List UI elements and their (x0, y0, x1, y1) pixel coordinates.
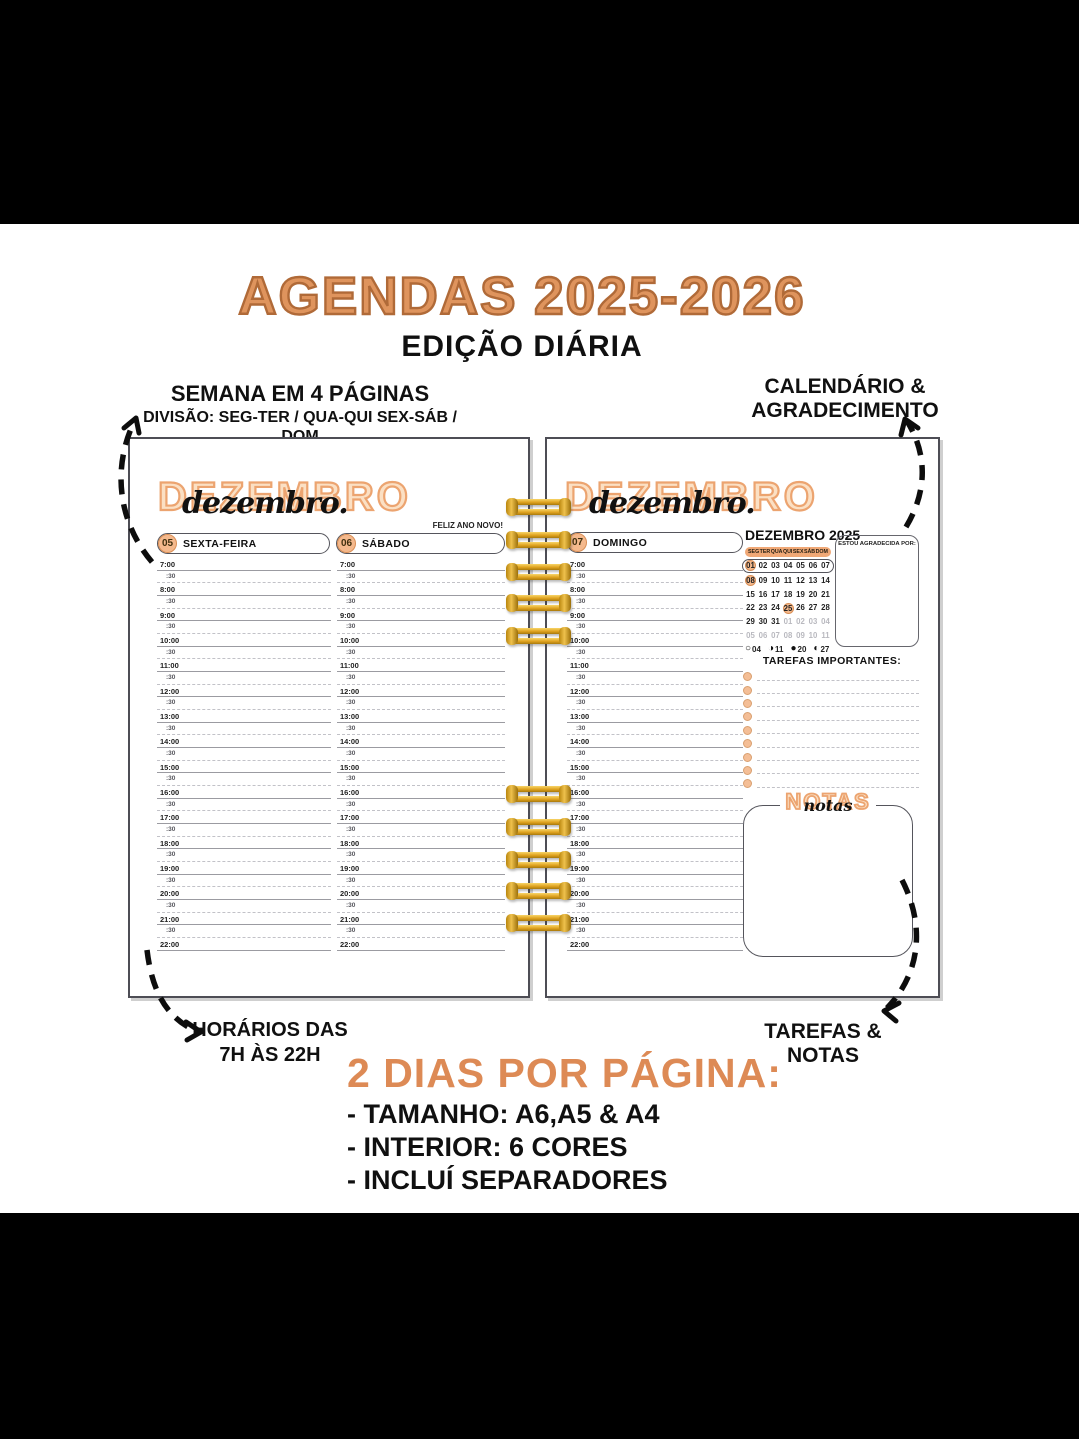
half-hour-label: :30 (576, 699, 585, 706)
planner-right-page: DEZEMBRO dezembro. 07 DOMINGO 7:00:308:0… (545, 437, 940, 998)
half-slot-row: :30 (337, 672, 505, 685)
spiral-ring (507, 915, 570, 931)
half-hour-label: :30 (576, 598, 585, 605)
calendar-day: 01 (783, 616, 794, 628)
time-slot-row: 16:00 (157, 786, 331, 799)
half-hour-label: :30 (346, 699, 355, 706)
time-label: 14:00 (340, 737, 359, 746)
half-slot-row: :30 (157, 849, 331, 862)
half-slot-row: :30 (157, 596, 331, 609)
schedule-grid-friday: 7:00:308:00:309:00:3010:00:3011:00:3012:… (157, 558, 331, 951)
time-slot-row: 16:00 (337, 786, 505, 799)
moon-phase: ○04 (745, 644, 761, 654)
half-hour-label: :30 (576, 851, 585, 858)
notes-header: NOTAS notas (743, 789, 913, 815)
time-label: 8:00 (160, 585, 175, 594)
calendar-day: 07 (770, 630, 781, 642)
half-hour-label: :30 (166, 775, 175, 782)
time-label: 22:00 (340, 940, 359, 949)
half-hour-label: :30 (346, 623, 355, 630)
spiral-cap (506, 563, 518, 581)
calendar-day: 15 (745, 589, 756, 601)
time-label: 12:00 (570, 687, 589, 696)
calendar-day: 27 (808, 602, 819, 614)
time-label: 21:00 (340, 915, 359, 924)
calendar-day: 07 (820, 560, 831, 572)
time-label: 15:00 (340, 763, 359, 772)
spiral-cap (506, 882, 518, 900)
time-slot-row: 9:00 (157, 609, 331, 622)
time-label: 11:00 (570, 661, 589, 670)
time-slot-row: 17:00 (567, 811, 743, 824)
day-name-label: SEXTA-FEIRA (183, 538, 257, 550)
calendar-day: 02 (758, 560, 769, 572)
calendar-week-row: 01020304050607 (742, 559, 834, 573)
month-header: DEZEMBRO dezembro. (565, 475, 818, 520)
time-label: 15:00 (570, 763, 589, 772)
day-header-sunday: 07 DOMINGO (567, 532, 743, 553)
mini-calendar: DEZEMBRO 2025 SEGTERQUAQUISEXSÁBDOM 0102… (745, 527, 831, 654)
half-slot-row: :30 (157, 875, 331, 888)
time-slot-row: 7:00 (157, 558, 331, 571)
time-label: 19:00 (570, 864, 589, 873)
time-label: 13:00 (160, 712, 179, 721)
calendar-day: 01 (745, 560, 756, 571)
annotation-hours-line2: 7H ÀS 22H (190, 1043, 350, 1068)
spiral-cap (506, 851, 518, 869)
page-title: AGENDAS 2025-2026 (0, 266, 1044, 327)
half-slot-row: :30 (337, 773, 505, 786)
time-label: 8:00 (340, 585, 355, 594)
mini-calendar-weekday-row: SEGTERQUAQUISEXSÁBDOM (745, 547, 831, 557)
half-slot-row: :30 (567, 672, 743, 685)
holiday-note: FELIZ ANO NOVO! (345, 521, 503, 530)
time-label: 21:00 (160, 915, 179, 924)
time-label: 9:00 (570, 611, 585, 620)
time-slot-row: 13:00 (567, 710, 743, 723)
half-slot-row: :30 (337, 875, 505, 888)
half-hour-label: :30 (346, 826, 355, 833)
spiral-cap (506, 914, 518, 932)
spiral-cap (559, 498, 571, 516)
time-label: 17:00 (340, 813, 359, 822)
annotation-week-pages-line1: SEMANA EM 4 PÁGINAS (130, 381, 470, 406)
day-number-badge: 06 (337, 534, 356, 553)
gratitude-label: ESTOU AGRADECIDA POR: (836, 541, 918, 547)
half-slot-row: :30 (337, 799, 505, 812)
time-label: 18:00 (340, 839, 359, 848)
calendar-day: 19 (795, 589, 806, 601)
task-row (743, 683, 919, 696)
spiral-cap (506, 531, 518, 549)
calendar-day: 30 (758, 616, 769, 628)
task-line (757, 692, 919, 694)
time-label: 10:00 (340, 636, 359, 645)
half-slot-row: :30 (157, 748, 331, 761)
spiral-ring (507, 628, 570, 644)
half-hour-label: :30 (166, 674, 175, 681)
time-label: 7:00 (570, 560, 585, 569)
features-list: - TAMANHO: A6,A5 & A4 - INTERIOR: 6 CORE… (347, 1098, 668, 1197)
time-slot-row: 18:00 (157, 837, 331, 850)
time-label: 12:00 (340, 687, 359, 696)
time-slot-row: 7:00 (337, 558, 505, 571)
calendar-day: 12 (795, 575, 806, 587)
half-slot-row: :30 (157, 824, 331, 837)
time-slot-row: 8:00 (337, 583, 505, 596)
half-hour-label: :30 (346, 877, 355, 884)
time-slot-row: 19:00 (157, 862, 331, 875)
half-slot-row: :30 (567, 697, 743, 710)
time-slot-row: 13:00 (337, 710, 505, 723)
notes-header-wrap: NOTAS notas (780, 789, 875, 815)
annotation-calendar-gratitude: CALENDÁRIO & AGRADECIMENTO (745, 375, 945, 423)
half-slot-row: :30 (157, 621, 331, 634)
time-label: 22:00 (160, 940, 179, 949)
task-bullet-icon (743, 712, 752, 721)
calendar-day: 17 (770, 589, 781, 601)
time-label: 19:00 (160, 864, 179, 873)
time-label: 21:00 (570, 915, 589, 924)
half-hour-label: :30 (166, 699, 175, 706)
half-slot-row: :30 (567, 647, 743, 660)
calendar-week-row: 05060708091011 (745, 630, 831, 642)
calendar-weekday: TER (760, 549, 771, 555)
time-slot-row: 10:00 (337, 634, 505, 647)
time-slot-row: 15:00 (567, 761, 743, 774)
task-bullet-icon (743, 753, 752, 762)
half-hour-label: :30 (576, 649, 585, 656)
moon-phase-day: 11 (775, 645, 783, 654)
half-hour-label: :30 (166, 649, 175, 656)
spiral-cap (559, 818, 571, 836)
spiral-cap (559, 785, 571, 803)
time-label: 20:00 (340, 889, 359, 898)
time-label: 19:00 (340, 864, 359, 873)
time-label: 14:00 (570, 737, 589, 746)
spiral-ring (507, 883, 570, 899)
time-slot-row: 9:00 (567, 609, 743, 622)
half-hour-label: :30 (576, 750, 585, 757)
spiral-cap (506, 594, 518, 612)
day-name-label: DOMINGO (593, 537, 647, 549)
time-slot-row: 21:00 (337, 913, 505, 926)
annotation-calendar-line2: AGRADECIMENTO (745, 399, 945, 423)
time-slot-row: 21:00 (567, 913, 743, 926)
day-header-friday: 05 SEXTA-FEIRA (157, 533, 330, 554)
task-line (757, 786, 919, 788)
time-slot-row: 22:00 (567, 938, 743, 951)
time-label: 11:00 (340, 661, 359, 670)
time-slot-row: 19:00 (567, 862, 743, 875)
time-label: 17:00 (570, 813, 589, 822)
spiral-ring (507, 595, 570, 611)
moon-phase: ●20 (790, 644, 806, 654)
gratitude-box: ESTOU AGRADECIDA POR: (835, 535, 919, 647)
half-slot-row: :30 (157, 672, 331, 685)
calendar-day: 25 (783, 603, 794, 614)
half-hour-label: :30 (346, 573, 355, 580)
calendar-day: 28 (820, 602, 831, 614)
calendar-weekday: QUI (783, 549, 792, 555)
half-slot-row: :30 (567, 571, 743, 584)
half-hour-label: :30 (346, 902, 355, 909)
day-header-saturday: 06 SÁBADO (336, 533, 505, 554)
time-slot-row: 17:00 (337, 811, 505, 824)
half-slot-row: :30 (567, 773, 743, 786)
calendar-day: 11 (820, 630, 831, 642)
notes-box (743, 805, 913, 957)
half-slot-row: :30 (337, 571, 505, 584)
time-label: 18:00 (570, 839, 589, 848)
half-slot-row: :30 (567, 900, 743, 913)
time-label: 16:00 (160, 788, 179, 797)
half-slot-row: :30 (337, 723, 505, 736)
half-hour-label: :30 (166, 877, 175, 884)
half-hour-label: :30 (346, 649, 355, 656)
half-hour-label: :30 (346, 674, 355, 681)
task-bullet-icon (743, 779, 752, 788)
spiral-cap (506, 627, 518, 645)
calendar-day: 18 (783, 589, 794, 601)
half-hour-label: :30 (166, 851, 175, 858)
notes-name-script: notas (803, 796, 852, 815)
important-tasks-label: TAREFAS IMPORTANTES: (745, 655, 919, 667)
spiral-ring (507, 852, 570, 868)
feature-item-size: - TAMANHO: A6,A5 & A4 (347, 1098, 668, 1131)
time-slot-row: 12:00 (567, 685, 743, 698)
half-hour-label: :30 (576, 826, 585, 833)
time-label: 15:00 (160, 763, 179, 772)
spiral-cap (559, 563, 571, 581)
time-slot-row: 17:00 (157, 811, 331, 824)
task-line (757, 772, 919, 774)
half-hour-label: :30 (576, 877, 585, 884)
annotation-hours: HORÁRIOS DAS 7H ÀS 22H (190, 1018, 350, 1068)
time-slot-row: 16:00 (567, 786, 743, 799)
calendar-day: 04 (783, 560, 794, 572)
spiral-ring (507, 819, 570, 835)
time-slot-row: 19:00 (337, 862, 505, 875)
time-slot-row: 21:00 (157, 913, 331, 926)
half-hour-label: :30 (346, 598, 355, 605)
calendar-weekday: SEX (793, 549, 804, 555)
spiral-cap (506, 785, 518, 803)
task-row (743, 724, 919, 737)
moon-phase-icon: ◑ (768, 644, 774, 654)
time-slot-row: 8:00 (567, 583, 743, 596)
half-slot-row: :30 (337, 824, 505, 837)
calendar-day: 05 (745, 630, 756, 642)
spiral-cap (506, 498, 518, 516)
time-label: 10:00 (160, 636, 179, 645)
calendar-day: 03 (770, 560, 781, 572)
day-name-label: SÁBADO (362, 538, 410, 550)
spiral-cap (559, 627, 571, 645)
half-hour-label: :30 (166, 927, 175, 934)
feature-item-interior: - INTERIOR: 6 CORES (347, 1131, 668, 1164)
task-bullet-icon (743, 672, 752, 681)
half-slot-row: :30 (337, 849, 505, 862)
task-row (743, 670, 919, 683)
planner-promo-image: AGENDAS 2025-2026 EDIÇÃO DIÁRIA SEMANA E… (0, 0, 1079, 1439)
time-label: 16:00 (340, 788, 359, 797)
time-label: 14:00 (160, 737, 179, 746)
feature-item-separators: - INCLUÍ SEPARADORES (347, 1164, 668, 1197)
task-line (757, 732, 919, 734)
half-slot-row: :30 (337, 900, 505, 913)
calendar-week-row: 29303101020304 (745, 616, 831, 628)
time-label: 16:00 (570, 788, 589, 797)
task-row (743, 764, 919, 777)
time-label: 20:00 (160, 889, 179, 898)
task-row (743, 710, 919, 723)
time-label: 17:00 (160, 813, 179, 822)
calendar-day: 10 (770, 575, 781, 587)
half-hour-label: :30 (576, 725, 585, 732)
task-bullet-icon (743, 739, 752, 748)
calendar-week-row: 22232425262728 (745, 602, 831, 614)
important-tasks-list (743, 670, 919, 791)
time-label: 7:00 (340, 560, 355, 569)
half-hour-label: :30 (166, 598, 175, 605)
spiral-ring (507, 786, 570, 802)
month-name-script: dezembro. (589, 486, 755, 521)
task-bullet-icon (743, 726, 752, 735)
task-line (757, 746, 919, 748)
calendar-day: 05 (795, 560, 806, 572)
half-hour-label: :30 (346, 801, 355, 808)
time-slot-row: 7:00 (567, 558, 743, 571)
task-bullet-icon (743, 699, 752, 708)
time-label: 20:00 (570, 889, 589, 898)
task-line (757, 679, 919, 681)
half-slot-row: :30 (157, 925, 331, 938)
half-slot-row: :30 (337, 596, 505, 609)
time-label: 13:00 (570, 712, 589, 721)
spiral-ring (507, 532, 570, 548)
time-label: 12:00 (160, 687, 179, 696)
task-line (757, 719, 919, 721)
moon-phase-icon: ◐ (813, 644, 819, 654)
half-slot-row: :30 (567, 875, 743, 888)
calendar-day: 04 (820, 616, 831, 628)
time-slot-row: 18:00 (567, 837, 743, 850)
half-hour-label: :30 (576, 775, 585, 782)
time-label: 18:00 (160, 839, 179, 848)
time-slot-row: 11:00 (337, 659, 505, 672)
time-slot-row: 11:00 (157, 659, 331, 672)
task-row (743, 750, 919, 763)
half-hour-label: :30 (576, 902, 585, 909)
mini-calendar-title: DEZEMBRO 2025 (745, 527, 831, 543)
calendar-day: 31 (770, 616, 781, 628)
time-label: 22:00 (570, 940, 589, 949)
time-slot-row: 14:00 (157, 735, 331, 748)
annotation-hours-line1: HORÁRIOS DAS (190, 1018, 350, 1043)
half-hour-label: :30 (576, 674, 585, 681)
time-slot-row: 15:00 (337, 761, 505, 774)
time-slot-row: 20:00 (157, 887, 331, 900)
spiral-cap (559, 882, 571, 900)
month-header: DEZEMBRO dezembro. (158, 475, 411, 520)
time-slot-row: 14:00 (337, 735, 505, 748)
time-label: 9:00 (340, 611, 355, 620)
month-name-script: dezembro. (182, 486, 348, 521)
calendar-weekday: QUA (771, 549, 783, 555)
half-hour-label: :30 (346, 750, 355, 757)
calendar-day: 08 (745, 575, 756, 586)
half-slot-row: :30 (337, 647, 505, 660)
half-hour-label: :30 (166, 801, 175, 808)
half-slot-row: :30 (337, 748, 505, 761)
time-label: 10:00 (570, 636, 589, 645)
calendar-day: 09 (758, 575, 769, 587)
calendar-day: 08 (783, 630, 794, 642)
page-subtitle: EDIÇÃO DIÁRIA (0, 330, 1044, 364)
half-slot-row: :30 (567, 596, 743, 609)
half-hour-label: :30 (576, 573, 585, 580)
calendar-day: 16 (758, 589, 769, 601)
calendar-weekday: DOM (816, 549, 828, 555)
moon-phase-day: 20 (798, 645, 807, 654)
time-slot-row: 15:00 (157, 761, 331, 774)
half-hour-label: :30 (576, 623, 585, 630)
half-slot-row: :30 (567, 799, 743, 812)
half-slot-row: :30 (157, 697, 331, 710)
moon-phase-icon: ● (790, 644, 796, 654)
spiral-cap (559, 914, 571, 932)
calendar-weekday: SÁB (804, 549, 815, 555)
half-slot-row: :30 (337, 697, 505, 710)
planner-left-page: DEZEMBRO dezembro. FELIZ ANO NOVO! 05 SE… (128, 437, 530, 998)
half-slot-row: :30 (567, 621, 743, 634)
time-label: 8:00 (570, 585, 585, 594)
half-slot-row: :30 (567, 849, 743, 862)
time-slot-row: 22:00 (337, 938, 505, 951)
half-slot-row: :30 (567, 748, 743, 761)
half-slot-row: :30 (157, 900, 331, 913)
calendar-day: 22 (745, 602, 756, 614)
half-hour-label: :30 (346, 851, 355, 858)
spiral-cap (559, 851, 571, 869)
moon-phase: ◐27 (813, 644, 829, 654)
moon-phase-day: 04 (752, 645, 761, 654)
calendar-week-row: 08091011121314 (745, 575, 831, 587)
half-slot-row: :30 (567, 723, 743, 736)
calendar-day: 21 (820, 589, 831, 601)
time-slot-row: 11:00 (567, 659, 743, 672)
spiral-ring (507, 499, 570, 515)
annotation-calendar-line1: CALENDÁRIO & (745, 375, 945, 399)
calendar-day: 06 (808, 560, 819, 572)
task-bullet-icon (743, 766, 752, 775)
time-slot-row: 14:00 (567, 735, 743, 748)
schedule-grid-sunday: 7:00:308:00:309:00:3010:00:3011:00:3012:… (567, 558, 743, 951)
calendar-day: 09 (795, 630, 806, 642)
calendar-day: 20 (808, 589, 819, 601)
half-hour-label: :30 (576, 927, 585, 934)
calendar-day: 13 (808, 575, 819, 587)
moon-phase-icon: ○ (745, 644, 751, 654)
half-slot-row: :30 (157, 571, 331, 584)
time-slot-row: 10:00 (157, 634, 331, 647)
calendar-day: 03 (808, 616, 819, 628)
time-slot-row: 12:00 (157, 685, 331, 698)
half-hour-label: :30 (166, 826, 175, 833)
calendar-week-row: 15161718192021 (745, 589, 831, 601)
half-slot-row: :30 (567, 925, 743, 938)
